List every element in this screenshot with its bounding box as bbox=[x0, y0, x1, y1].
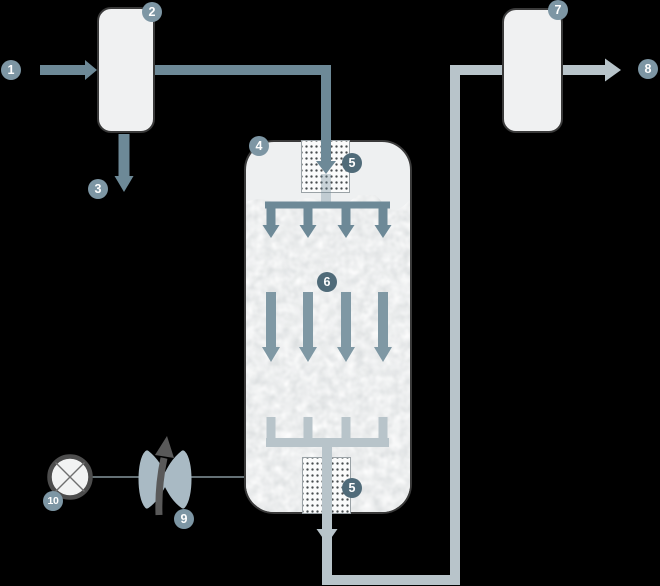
drain-arrow-3 bbox=[115, 134, 134, 192]
distribution-manifold bbox=[263, 205, 392, 238]
collector-manifold bbox=[266, 417, 389, 514]
outlet-arrow-8 bbox=[563, 59, 621, 82]
feed-arrow-1 bbox=[40, 60, 97, 80]
pipe-vessel2-to-vessel4 bbox=[155, 70, 336, 203]
badge-4: 4 bbox=[249, 136, 269, 156]
media-flow-arrow-icons bbox=[262, 292, 392, 362]
badge-9: 9 bbox=[174, 509, 194, 529]
badge-6: 6 bbox=[317, 272, 337, 292]
process-flow-diagram: 1 2 3 4 5 6 5 7 8 9 10 bbox=[0, 0, 660, 586]
badge-7: 7 bbox=[548, 0, 568, 20]
badge-10: 10 bbox=[43, 491, 63, 511]
badge-8: 8 bbox=[638, 59, 658, 79]
badge-3: 3 bbox=[88, 179, 108, 199]
badge-2: 2 bbox=[142, 2, 162, 22]
badge-5-bottom: 5 bbox=[342, 478, 362, 498]
badge-1: 1 bbox=[1, 60, 21, 80]
badge-5-top: 5 bbox=[342, 153, 362, 173]
piping-overlay bbox=[0, 0, 660, 586]
